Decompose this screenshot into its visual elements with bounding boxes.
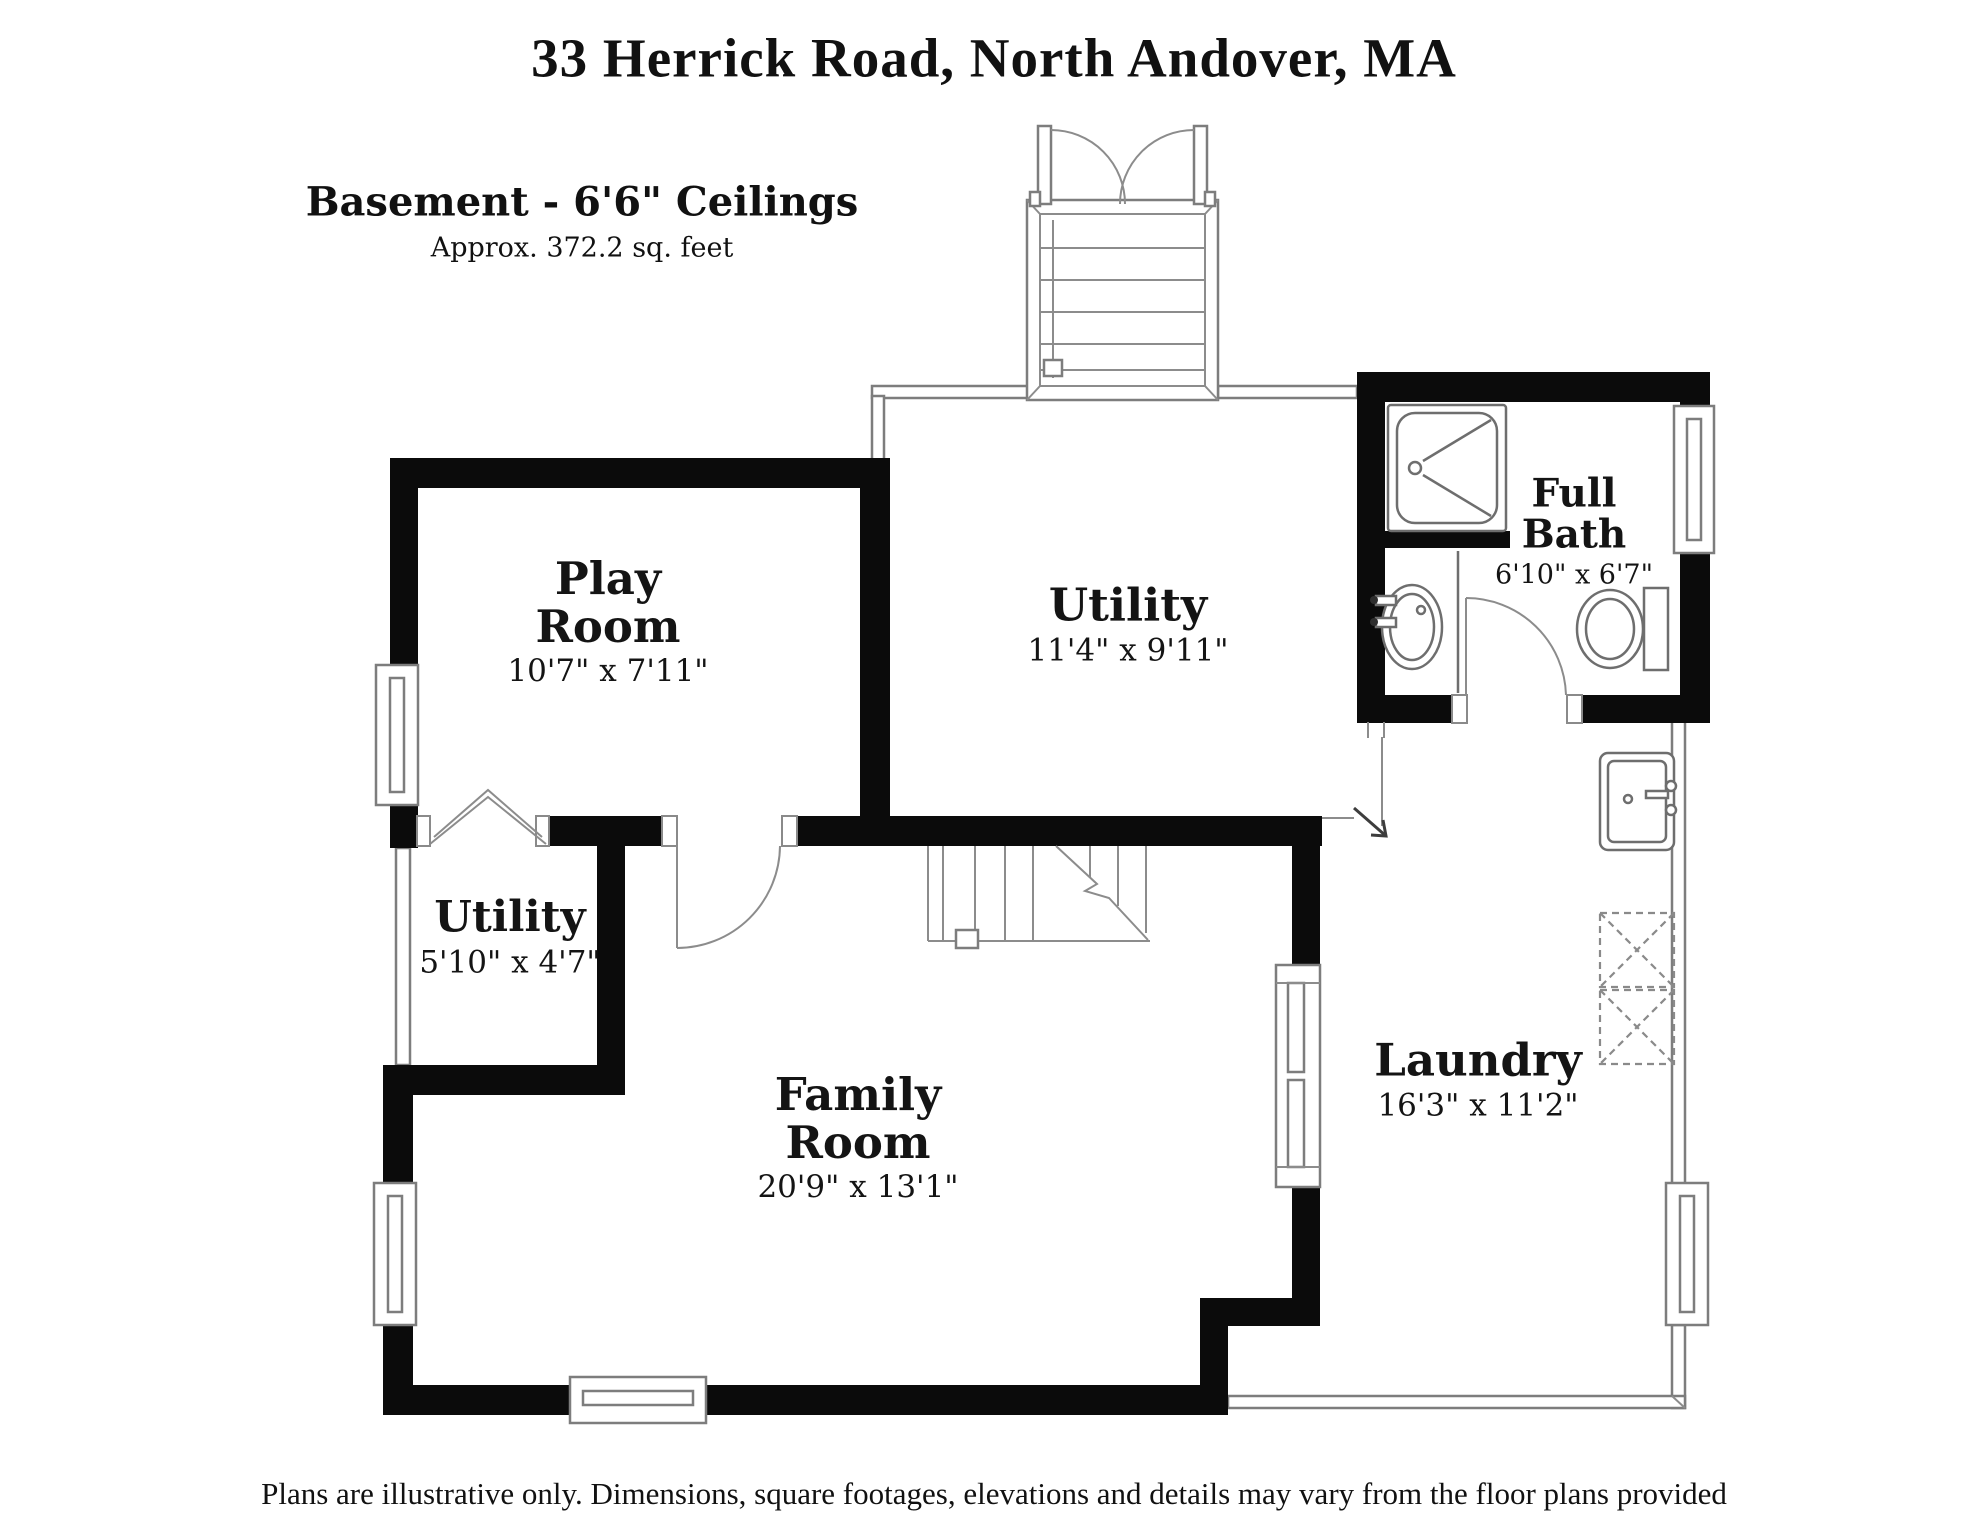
room-dims: 10'7" x 7'11" xyxy=(507,653,708,689)
window-bath-right-icon xyxy=(1674,406,1714,553)
laundry-sink-icon xyxy=(1600,753,1676,850)
room-label-full-bath: Full Bath 6'10" x 6'7" xyxy=(1495,474,1653,591)
room-dims: 20'9" x 13'1" xyxy=(757,1169,958,1205)
wall-band-left xyxy=(390,816,417,846)
wall-utility-small-bottom xyxy=(390,1065,625,1095)
washer-icon xyxy=(1600,913,1674,987)
wall-playroom-left-upper xyxy=(390,458,418,670)
door-swing-family xyxy=(677,846,780,948)
bulkhead-stairs-icon xyxy=(1027,126,1218,400)
wall-bath-bottom-right xyxy=(1582,695,1710,723)
room-label-laundry: Laundry 16'3" x 11'2" xyxy=(1374,1037,1582,1124)
shower-icon xyxy=(1388,405,1506,531)
wall-bath-bottom-left xyxy=(1357,695,1452,723)
wall-family-bottom xyxy=(383,1385,1228,1415)
wall-family-laundry-upper xyxy=(1292,846,1320,967)
wall-utility-small-right xyxy=(597,846,625,1095)
stair-break-line xyxy=(1056,846,1148,940)
jamb xyxy=(1452,695,1467,723)
room-dims: 5'10" x 4'7" xyxy=(419,944,600,980)
stair-newel xyxy=(956,930,978,948)
window-playroom-left-icon xyxy=(376,665,418,805)
jamb xyxy=(782,816,797,846)
bifold-door-icon xyxy=(430,797,546,844)
door-swing-bath xyxy=(1466,598,1566,695)
wall-shower-stub xyxy=(1385,531,1510,548)
dryer-icon xyxy=(1600,990,1674,1064)
room-dims: 11'4" x 9'11" xyxy=(1027,632,1228,668)
disclaimer-text: Plans are illustrative only. Dimensions,… xyxy=(261,1476,1727,1512)
room-label-utility-main: Utility 11'4" x 9'11" xyxy=(1027,582,1228,669)
bulkhead-newel xyxy=(1044,360,1062,376)
window-laundry-right-icon xyxy=(1666,1183,1708,1325)
wall-playroom-right xyxy=(860,458,890,818)
room-dims: 6'10" x 6'7" xyxy=(1495,559,1653,590)
foundation-connector-left xyxy=(872,396,884,462)
window-family-left-icon xyxy=(374,1183,416,1325)
floor-plan-drawing xyxy=(0,0,1988,1536)
wall-playroom-top xyxy=(390,458,890,488)
room-label-family-room: Family Room 20'9" x 13'1" xyxy=(757,1071,958,1205)
room-label-play-room: Play Room 10'7" x 7'11" xyxy=(507,555,708,689)
jamb xyxy=(662,816,677,846)
foundation-top-left xyxy=(872,386,1028,398)
window-family-laundry-icon xyxy=(1276,965,1320,1187)
wall-band-mid xyxy=(549,816,662,846)
floor-plan-page: 33 Herrick Road, North Andover, MA Basem… xyxy=(0,0,1988,1536)
wall-band-right xyxy=(797,816,1322,846)
bulkhead-door-swing xyxy=(1120,130,1194,204)
jamb xyxy=(1567,695,1582,723)
staircase-icon xyxy=(928,846,1150,948)
toilet-icon xyxy=(1577,588,1668,670)
window-family-bottom-icon xyxy=(570,1377,706,1423)
bulkhead-door-swing xyxy=(1051,130,1125,204)
jamb xyxy=(417,816,430,846)
passage-marks xyxy=(1322,722,1386,836)
room-label-utility-small: Utility 5'10" x 4'7" xyxy=(419,896,600,981)
foundation-utility-left xyxy=(396,848,410,1065)
wall-bath-left xyxy=(1357,372,1385,722)
wall-bath-top xyxy=(1357,372,1710,402)
wall-family-left-upper xyxy=(383,1065,413,1185)
wall-step-vertical xyxy=(1200,1298,1228,1415)
room-dims: 16'3" x 11'2" xyxy=(1374,1087,1582,1123)
wall-family-laundry-lower xyxy=(1292,1185,1320,1325)
foundation-top-right xyxy=(1218,386,1357,398)
foundation-bottom-laundry xyxy=(1228,1396,1685,1408)
